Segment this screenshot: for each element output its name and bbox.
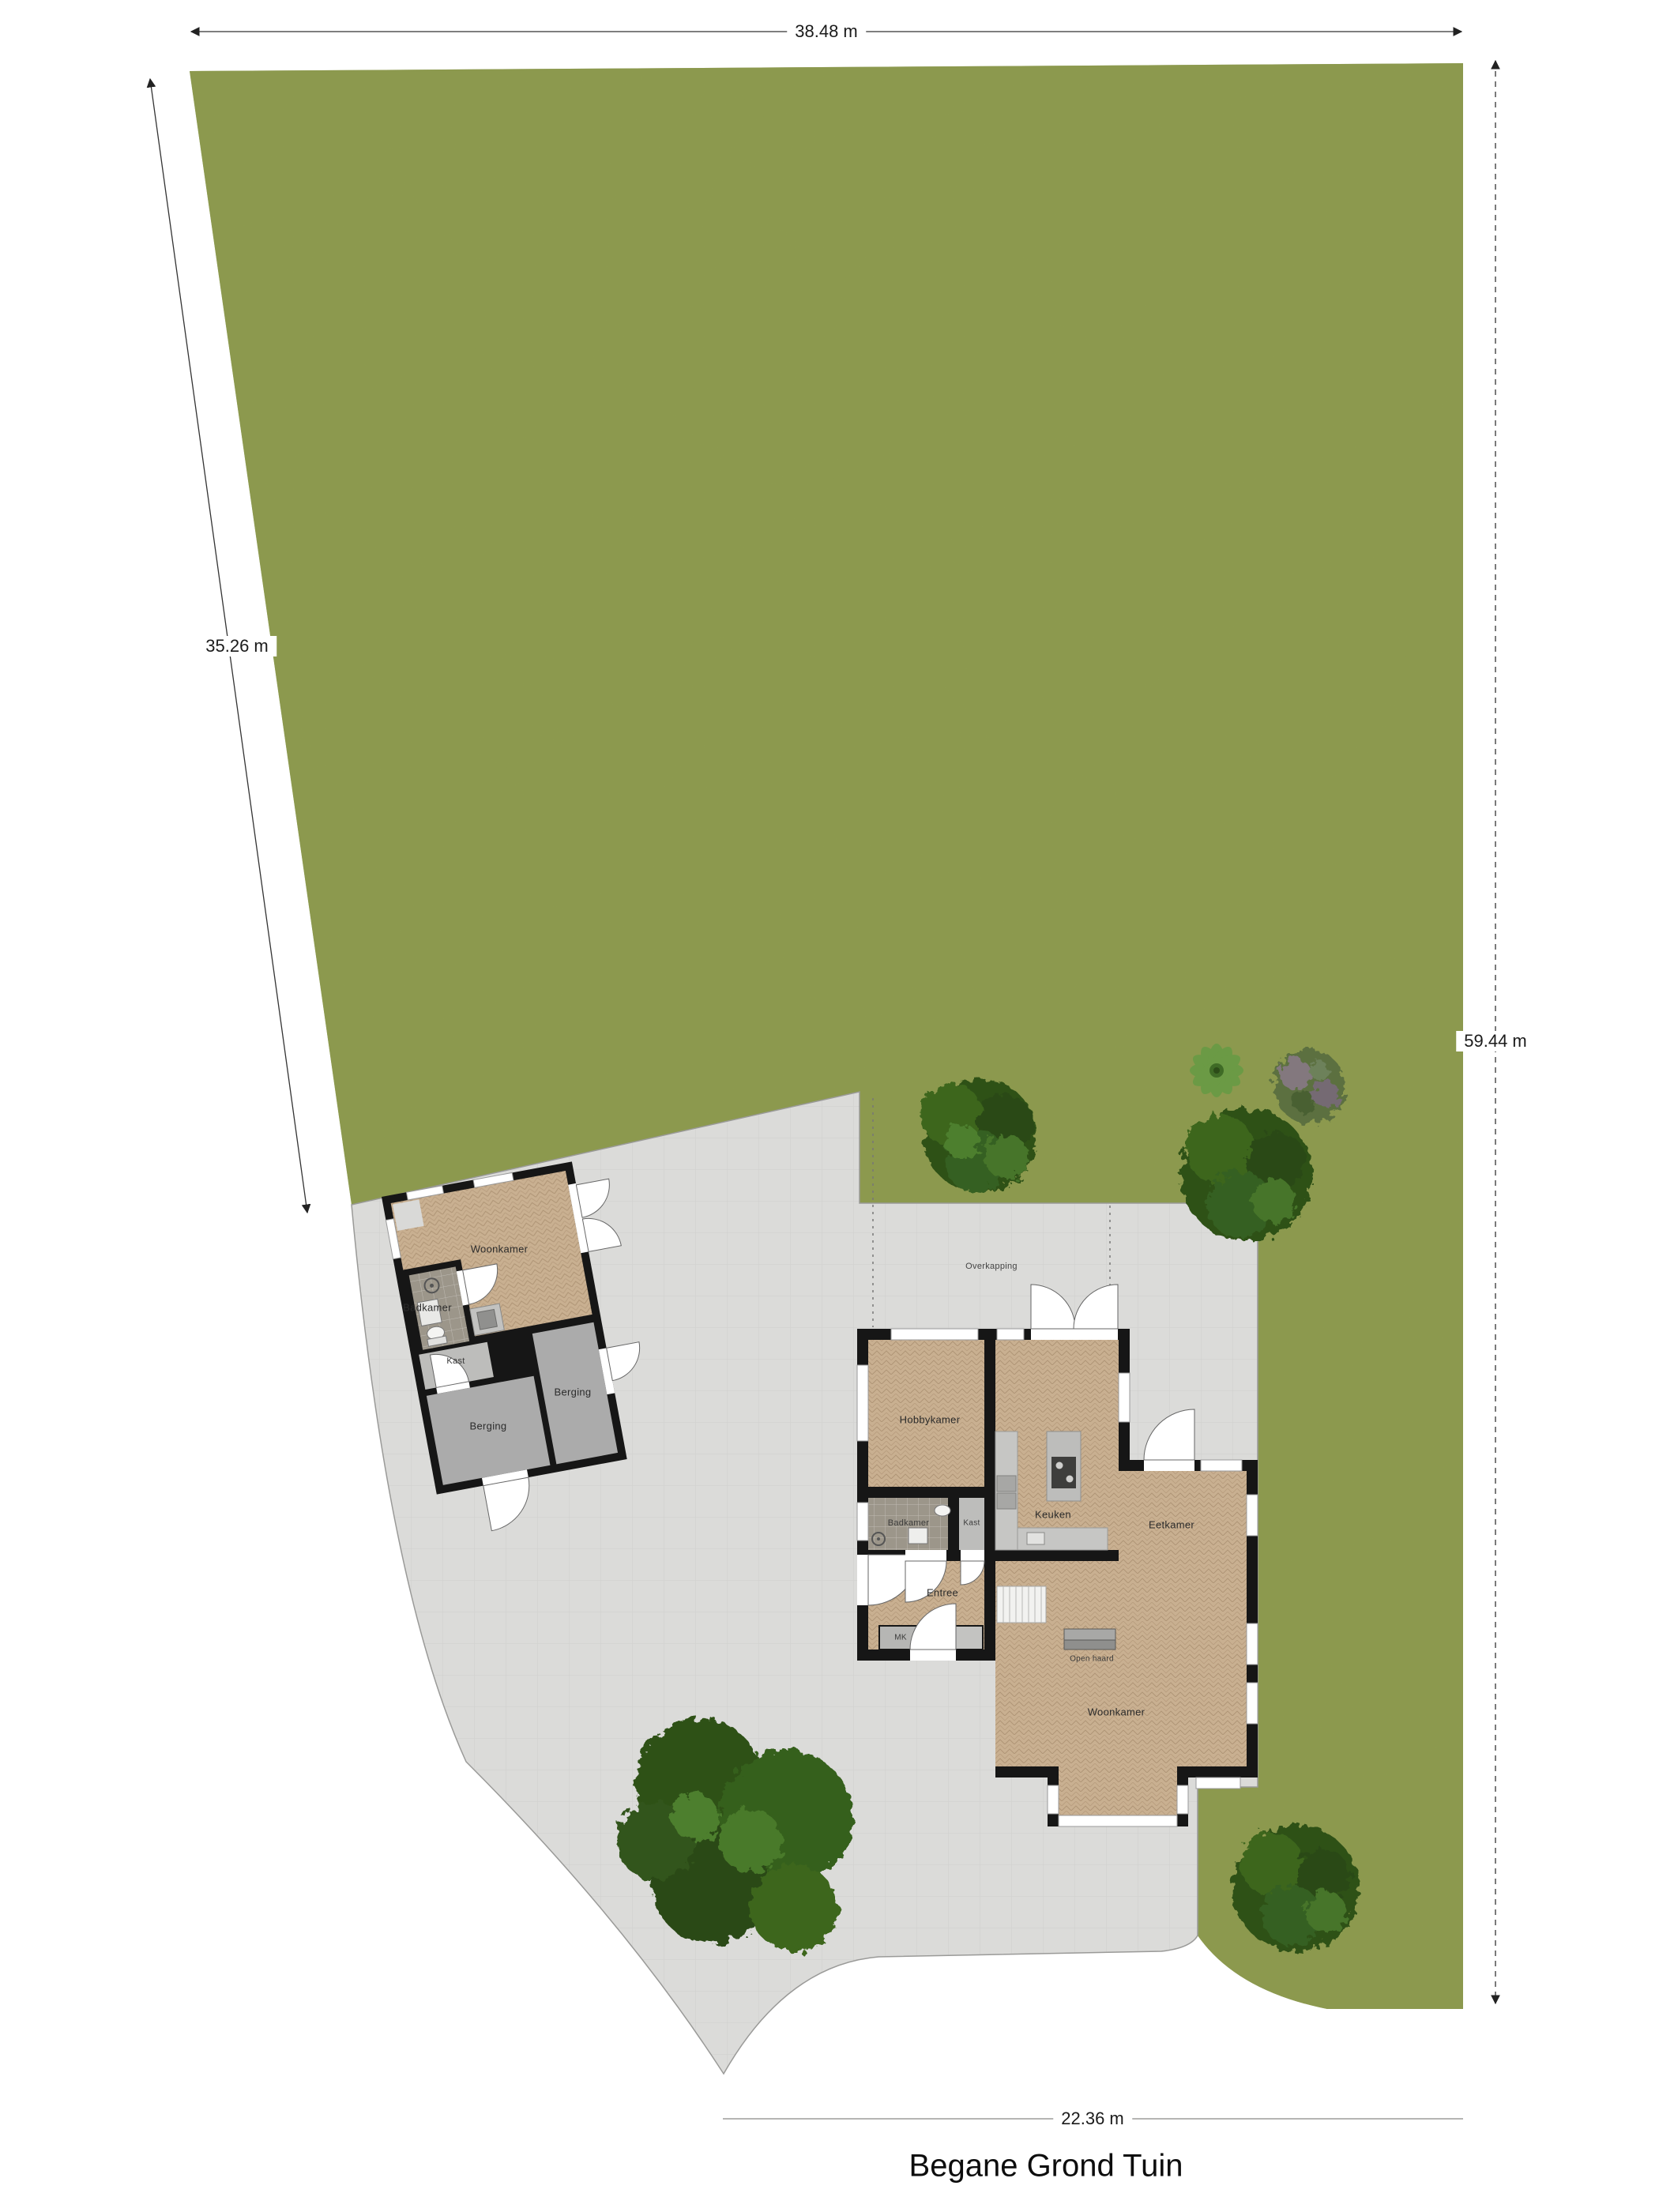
keuken-label: Keuken: [1035, 1509, 1071, 1521]
kitchen-sink-icon: [1027, 1533, 1044, 1544]
stairs: [997, 1586, 1046, 1623]
dimension-bottom-label: 22.36 m: [1053, 2109, 1132, 2129]
flowering-shrub: [1273, 1050, 1345, 1123]
floorplan-page: 38.48 m 35.26 m 59.44 m 22.36 m Overkapp…: [0, 0, 1659, 2212]
toilet-icon: [935, 1505, 950, 1516]
entree-label: Entree: [927, 1587, 958, 1599]
site-plan: [0, 0, 1659, 2212]
mk-label: MK: [894, 1634, 907, 1642]
eetkamer-label: Eetkamer: [1149, 1519, 1194, 1531]
tree-upper-right: [1180, 1108, 1313, 1241]
dimension-right-label: 59.44 m: [1456, 1031, 1535, 1051]
hobbykamer-label: Hobbykamer: [900, 1414, 961, 1426]
fireplace: [1064, 1629, 1115, 1650]
overkapping-label: Overkapping: [965, 1262, 1018, 1271]
dimension-left-label: 35.26 m: [197, 636, 276, 656]
dishwasher-icon: [997, 1493, 1016, 1509]
outbuilding-berging-left-label: Berging: [470, 1420, 507, 1432]
outbuilding-kast-label: Kast: [446, 1356, 465, 1366]
outbuilding-badkamer-label: Badkamer: [403, 1302, 452, 1314]
stove-icon: [1051, 1457, 1076, 1488]
oven-icon: [997, 1476, 1016, 1492]
sink-icon: [908, 1528, 927, 1544]
bay-window-floor: [1059, 1766, 1177, 1815]
house-badkamer-label: Badkamer: [888, 1518, 930, 1528]
open-haard-label: Open haard: [1070, 1655, 1114, 1664]
tree-bottom-right: [1232, 1825, 1359, 1951]
dimension-top-label: 38.48 m: [787, 21, 866, 42]
page-title: Begane Grond Tuin: [909, 2149, 1183, 2184]
house-kast-label: Kast: [963, 1519, 980, 1528]
outbuilding-berging-right-label: Berging: [555, 1386, 592, 1398]
house-woonkamer-label: Woonkamer: [1088, 1706, 1145, 1718]
outbuilding-woonkamer-label: Woonkamer: [471, 1243, 529, 1255]
